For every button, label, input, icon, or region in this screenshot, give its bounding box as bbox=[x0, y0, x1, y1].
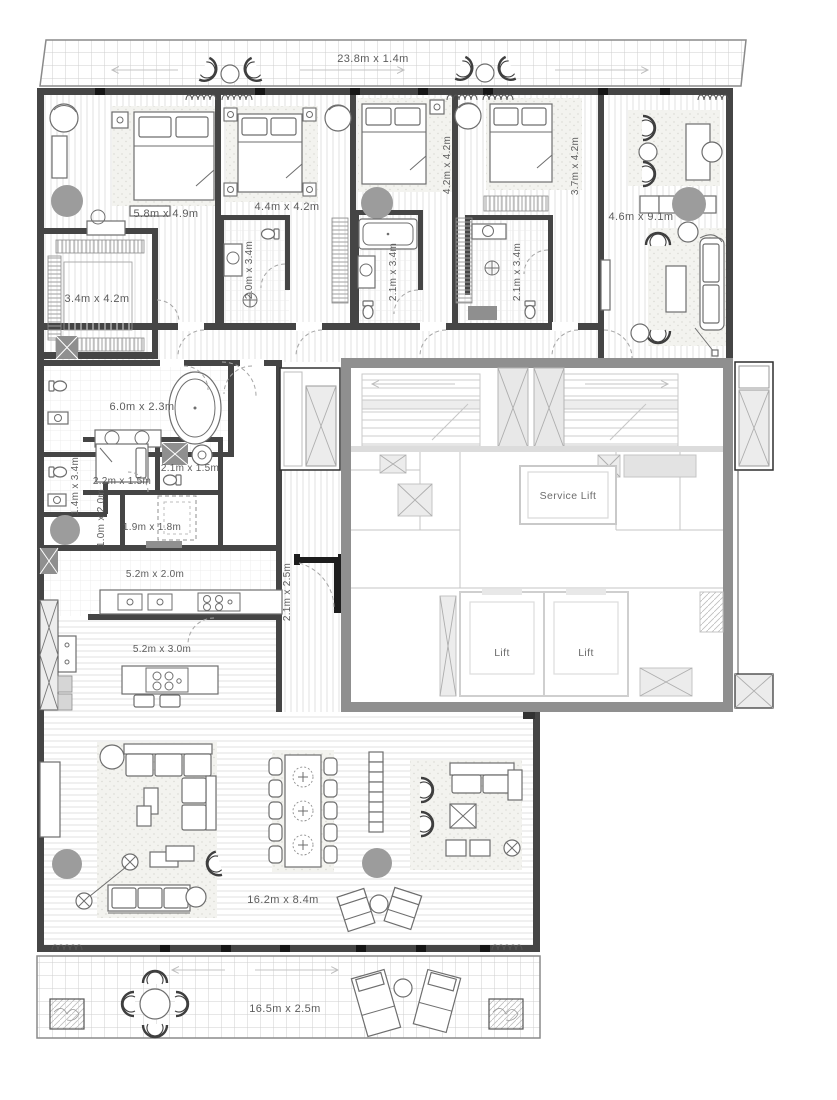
window-seat-icon bbox=[40, 762, 60, 837]
side-table-icon bbox=[394, 979, 412, 997]
armchair-icon bbox=[420, 812, 433, 836]
label-open-kitchen: 5.2m x 3.0m bbox=[133, 644, 191, 655]
coffee-table-icon bbox=[450, 804, 476, 828]
nightstand-icon bbox=[430, 100, 444, 114]
shaft-icon bbox=[739, 390, 769, 466]
label-master-bathroom: 6.0m x 2.3m bbox=[110, 401, 175, 413]
shaft-box bbox=[306, 386, 336, 466]
column bbox=[361, 187, 393, 219]
balcony-top: 23.8m x 1.4m bbox=[40, 40, 746, 86]
sofa-icon bbox=[700, 235, 724, 330]
side-table-icon bbox=[476, 64, 494, 82]
shaft-box bbox=[162, 443, 188, 465]
sofa-icon bbox=[108, 885, 190, 913]
label-bedroom-3: 4.2m x 4.2m bbox=[442, 136, 453, 194]
planter-icon bbox=[489, 999, 523, 1029]
side-table-icon bbox=[370, 895, 388, 913]
side-table-icon bbox=[678, 222, 698, 242]
label-lift-1: Lift bbox=[494, 647, 510, 659]
powder-room: 1.4m x 3.4m bbox=[48, 457, 81, 545]
bed-icon bbox=[238, 114, 302, 192]
wardrobe-icon bbox=[48, 256, 61, 340]
threshold bbox=[468, 306, 497, 320]
bed-icon bbox=[362, 104, 426, 184]
toilet-icon bbox=[525, 301, 535, 319]
armchair-icon bbox=[646, 330, 670, 343]
door-mark bbox=[523, 712, 535, 719]
chaise-icon bbox=[52, 136, 67, 178]
label-walk-in-closet: 3.4m x 4.2m bbox=[65, 293, 130, 305]
column bbox=[50, 515, 80, 545]
floor-plan-page: 23.8m x 1.4m bbox=[0, 0, 837, 1100]
side-table-icon bbox=[100, 745, 124, 769]
label-corridor: 1.0m x 2.0m bbox=[96, 489, 107, 547]
shaft-icon bbox=[398, 484, 432, 516]
lift-2: Lift bbox=[544, 589, 628, 696]
side-table-icon bbox=[221, 65, 239, 83]
nightstand-icon bbox=[112, 112, 128, 128]
corridor: 1.0m x 2.0m bbox=[96, 489, 107, 547]
terrace: 16.5m x 2.5m bbox=[37, 956, 540, 1038]
stairs-icon bbox=[362, 374, 480, 446]
side-table-icon bbox=[631, 324, 649, 342]
maid-room: 2.2m x 1.5m bbox=[93, 444, 151, 487]
armchair-icon bbox=[50, 104, 78, 132]
label-terrace: 16.5m x 2.5m bbox=[249, 1003, 320, 1015]
stool-icon bbox=[134, 695, 154, 707]
toilet-icon bbox=[49, 467, 67, 477]
label-master-bedroom: 5.8m x 4.9m bbox=[134, 208, 199, 220]
console-icon bbox=[601, 260, 610, 310]
external-shafts bbox=[735, 362, 773, 708]
lift-1: Lift bbox=[460, 589, 544, 696]
bed-icon bbox=[134, 112, 214, 200]
toilet-icon bbox=[262, 229, 280, 239]
shaft-box bbox=[40, 548, 58, 574]
label-living-dining: 16.2m x 8.4m bbox=[247, 894, 318, 906]
column bbox=[362, 848, 392, 878]
label-laundry: 2.1m x 1.5m bbox=[161, 463, 219, 474]
fridge-icon bbox=[58, 636, 76, 672]
label-powder-room: 1.4m x 3.4m bbox=[70, 457, 81, 515]
shaft-box bbox=[56, 336, 78, 359]
toilet-icon bbox=[164, 475, 182, 485]
side-table-icon bbox=[186, 887, 206, 907]
wardrobe-icon bbox=[56, 240, 144, 253]
bidet-icon bbox=[48, 412, 68, 424]
dresser-icon bbox=[87, 221, 125, 235]
label-service-lift: Service Lift bbox=[540, 490, 597, 502]
building-core: Service Lift Lift Lift bbox=[341, 358, 733, 719]
toilet-icon bbox=[49, 381, 67, 391]
armchair-icon bbox=[642, 116, 655, 140]
stool-icon bbox=[160, 695, 180, 707]
wardrobe-icon bbox=[332, 218, 348, 303]
wardrobe-icon bbox=[484, 196, 548, 211]
bed-icon bbox=[490, 104, 552, 182]
service-lift: Service Lift bbox=[520, 466, 616, 524]
floor-plan: 23.8m x 1.4m bbox=[0, 0, 837, 1100]
kitchen-island-icon bbox=[122, 666, 218, 694]
label-entry: 2.1m x 2.5m bbox=[282, 563, 293, 621]
label-kitchen: 5.2m x 2.0m bbox=[126, 569, 184, 580]
label-bathroom-4: 2.1m x 3.4m bbox=[512, 243, 523, 301]
label-store: 1.9m x 1.8m bbox=[123, 522, 181, 533]
label-balcony: 23.8m x 1.4m bbox=[337, 53, 408, 65]
label-lift-2: Lift bbox=[578, 647, 594, 659]
armchair-icon bbox=[642, 162, 655, 186]
ottoman-icon bbox=[446, 840, 466, 856]
side-table-icon bbox=[639, 143, 657, 161]
column bbox=[51, 185, 83, 217]
vanity-icon bbox=[224, 244, 242, 276]
outdoor-table-icon bbox=[140, 989, 170, 1019]
column bbox=[52, 849, 82, 879]
label-bedroom-4: 3.7m x 4.2m bbox=[570, 137, 581, 195]
coffee-table-icon bbox=[666, 266, 686, 312]
label-bedroom-2: 4.4m x 4.2m bbox=[255, 201, 320, 213]
shaft-icon bbox=[735, 674, 773, 708]
armchair-icon bbox=[646, 233, 670, 246]
wardrobe-icon bbox=[456, 218, 472, 303]
toilet-icon bbox=[363, 301, 373, 319]
shelf-icon bbox=[369, 752, 383, 832]
shaft-icon bbox=[380, 455, 406, 473]
dining-table-icon bbox=[285, 755, 321, 867]
armchair-icon bbox=[420, 778, 433, 802]
washer-icon bbox=[192, 445, 212, 465]
sink-icon bbox=[48, 494, 66, 506]
stairs-icon bbox=[560, 374, 678, 446]
column bbox=[672, 187, 706, 221]
side-table-icon bbox=[137, 806, 151, 826]
label-bathroom-3: 2.1m x 3.4m bbox=[388, 243, 399, 301]
label-study: 4.6m x 9.1m bbox=[609, 211, 674, 223]
planter-icon bbox=[50, 999, 84, 1029]
label-bathroom-2: 2.0m x 3.4m bbox=[244, 241, 255, 299]
coffee-table-icon bbox=[166, 846, 194, 861]
ottoman-icon bbox=[470, 840, 490, 856]
